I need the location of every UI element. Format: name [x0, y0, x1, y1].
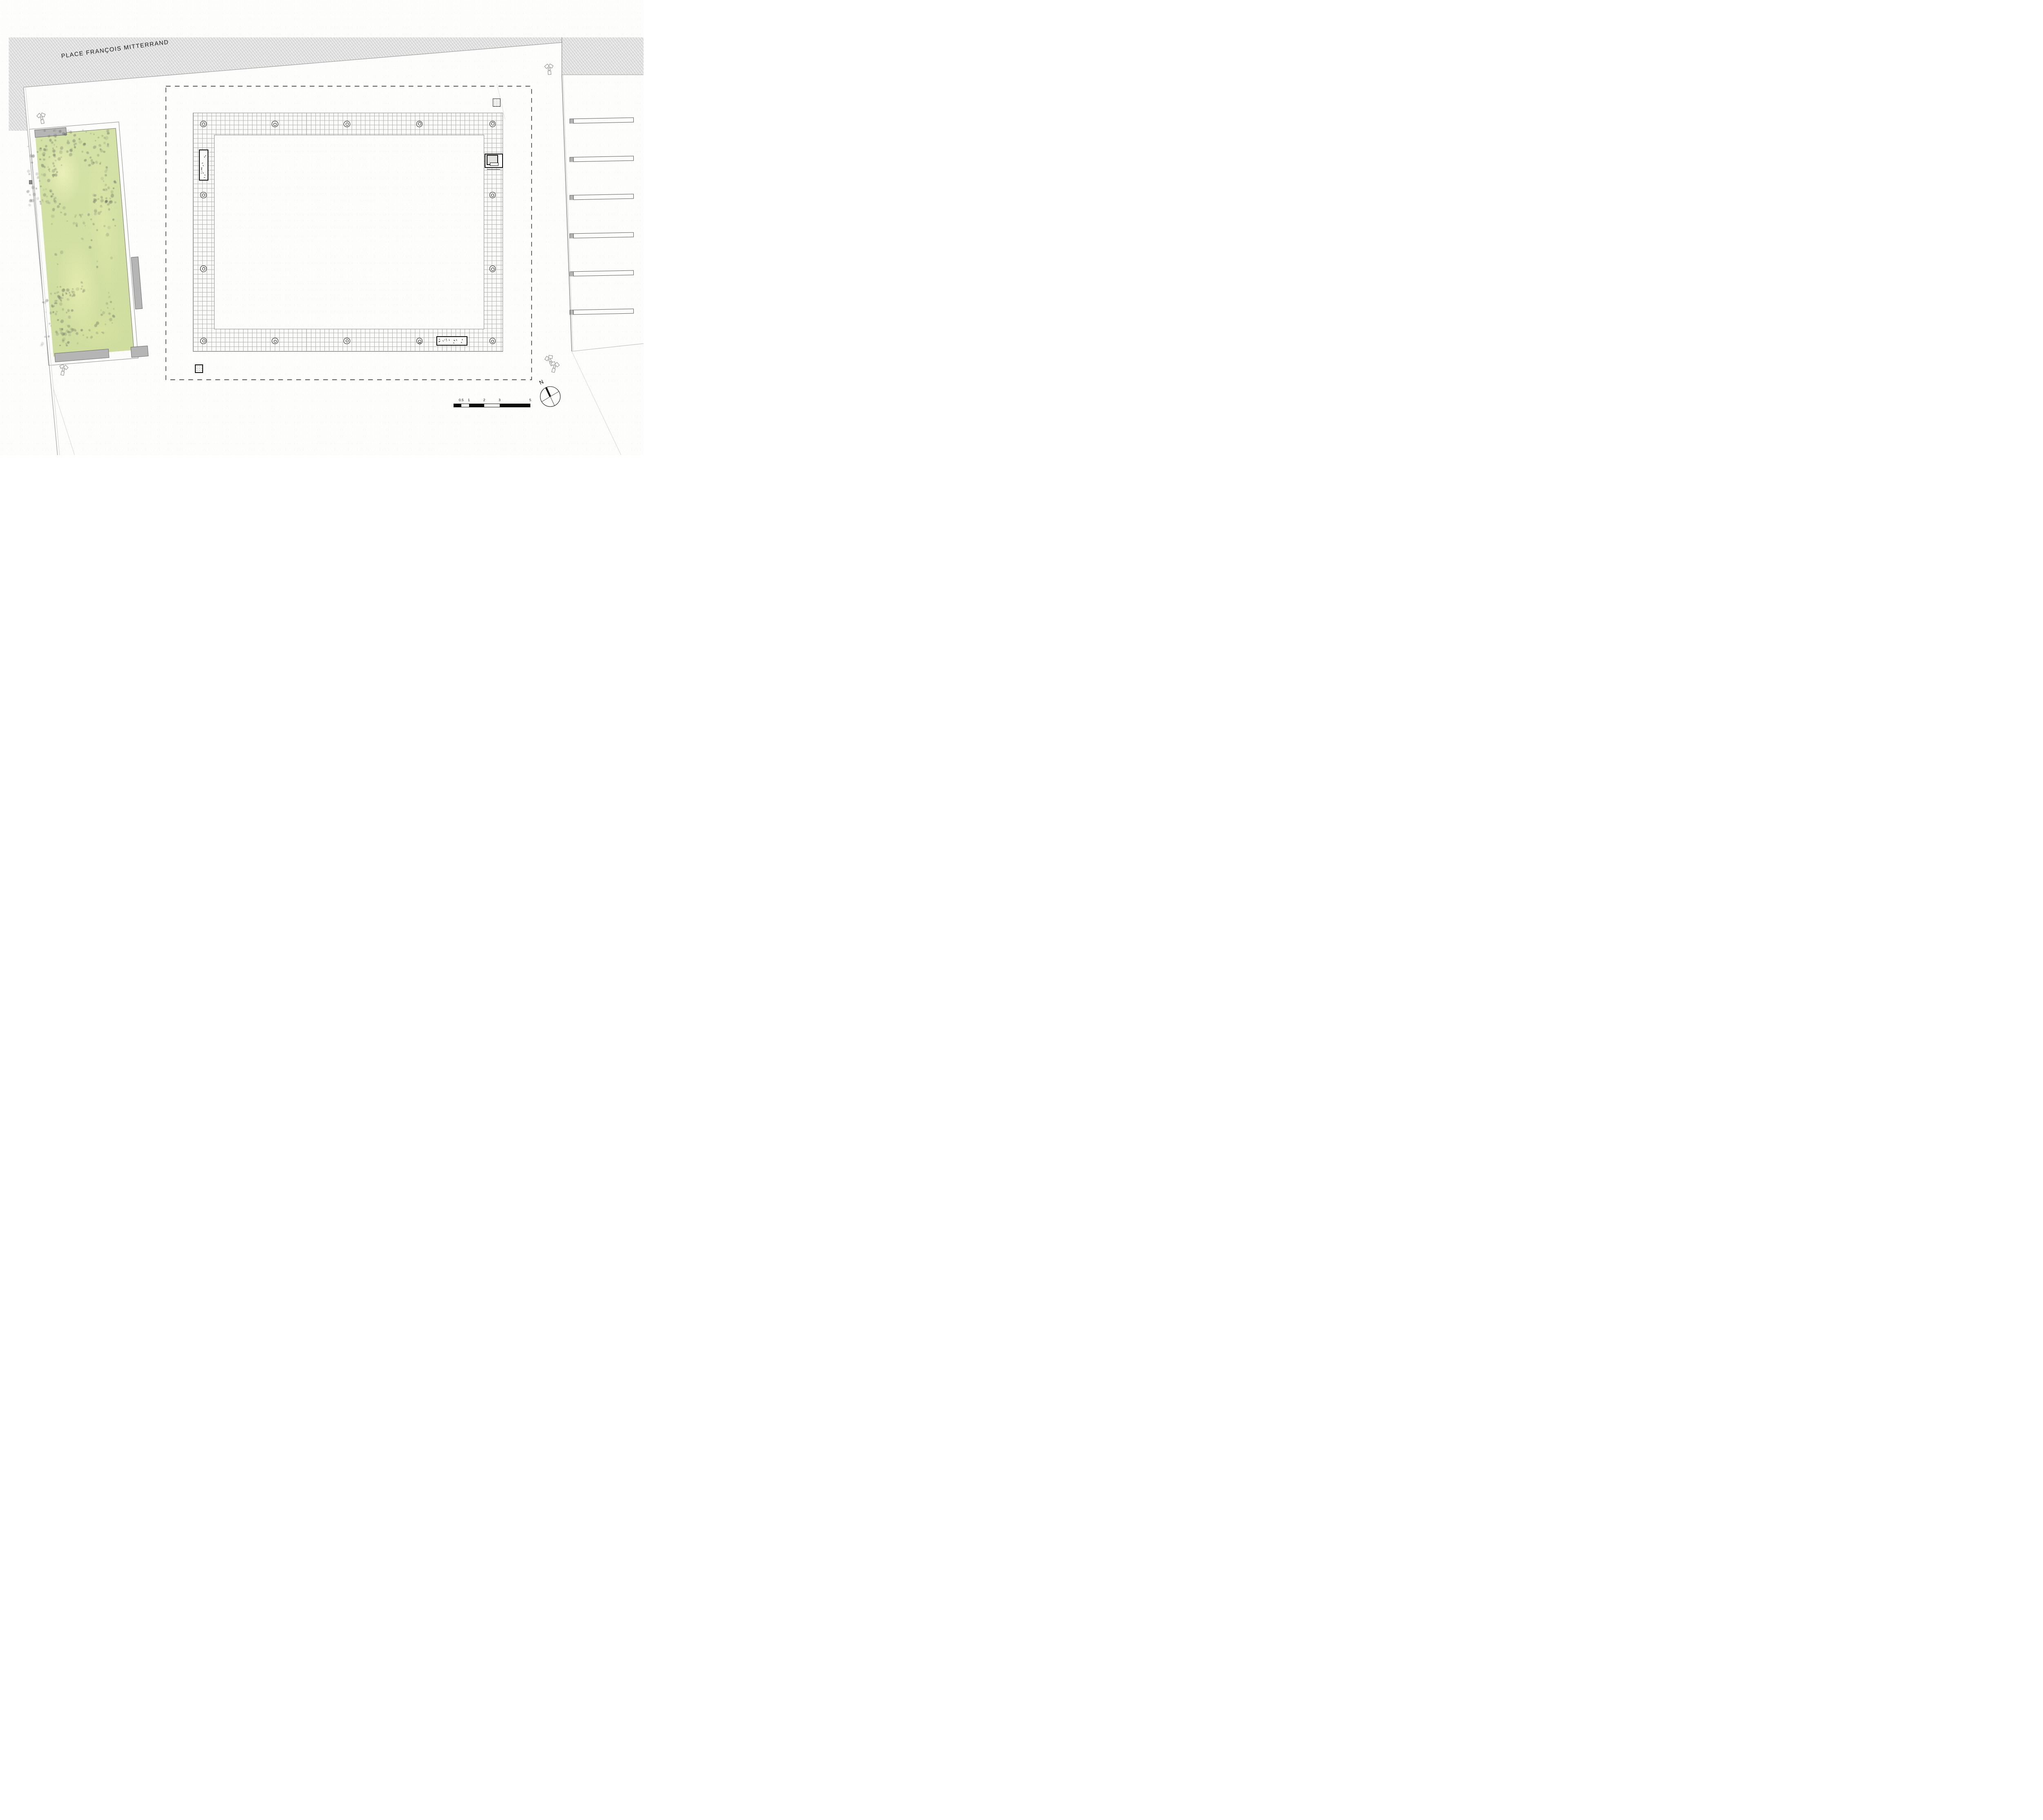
- floodlight-head: [548, 70, 551, 75]
- gravel-mark: [440, 341, 440, 342]
- gravel-bench-bottom: ▵▵▵: [436, 336, 467, 346]
- gravel-mark: [204, 175, 206, 176]
- scale-tick-label: 0.5: [459, 398, 464, 402]
- scale-tick-label: 3: [498, 398, 501, 402]
- column-symbol: [416, 338, 423, 344]
- floodlight-head: [552, 368, 556, 373]
- column-core: [491, 122, 494, 125]
- floodlight-icon: [548, 360, 561, 374]
- column-core: [274, 340, 277, 343]
- north-arrow: [540, 386, 560, 406]
- canopy-blob: [29, 198, 33, 202]
- column-core: [418, 122, 421, 125]
- column-core: [346, 123, 349, 126]
- gravel-triangle: ▵: [453, 339, 455, 342]
- scale-tick-label: 5: [529, 398, 531, 402]
- gravel-mark: [456, 339, 457, 341]
- canopy-blob: [40, 342, 45, 346]
- canopy-blob: [40, 344, 43, 347]
- column-symbol: [200, 338, 207, 344]
- column-core: [491, 194, 494, 197]
- gravel-mark: [205, 155, 206, 156]
- column-symbol: [490, 192, 496, 199]
- north-letter: N: [538, 379, 544, 386]
- concrete-pad-southwest: [195, 364, 203, 373]
- gravel-mark: [202, 163, 203, 163]
- fountain-step: [490, 163, 498, 166]
- concrete-bar-right: [131, 257, 142, 309]
- column-symbol: [272, 121, 278, 127]
- scale-bar: 0.5 1 2 3 5: [454, 404, 530, 407]
- column-core: [346, 339, 349, 343]
- pergola-grid-band: [193, 113, 503, 352]
- canopy-blob: [27, 145, 29, 147]
- column-symbol: [344, 121, 350, 127]
- gravel-mark: [443, 340, 443, 342]
- floodlight-head: [40, 119, 45, 124]
- column-symbol: [344, 338, 350, 344]
- tree-trunk-marker: [29, 180, 32, 184]
- wheel-stop: [570, 272, 573, 277]
- wheel-stop: [570, 119, 573, 124]
- gravel-mark: [204, 156, 205, 158]
- column-symbol: [200, 192, 207, 199]
- floodlight-icon: [35, 111, 48, 125]
- column-core: [491, 268, 494, 271]
- gravel-mark: [453, 342, 454, 343]
- gravel-mark: [461, 342, 462, 343]
- parking-stall: [570, 308, 634, 315]
- floodlight-base: [548, 68, 550, 70]
- garden-path-frame: [29, 122, 139, 366]
- scale-segment: [484, 404, 500, 407]
- canopy-blob: [28, 203, 31, 207]
- column-core: [202, 339, 206, 343]
- floodlight-base: [40, 117, 43, 120]
- scale-segment: [461, 404, 469, 407]
- floodlight-icon: [543, 63, 555, 75]
- column-symbol: [490, 121, 496, 127]
- canopy-blob: [30, 199, 35, 203]
- floodlight-head: [548, 355, 553, 359]
- concrete-pad-northeast: [493, 98, 501, 107]
- gravel-mark: [462, 339, 463, 340]
- column-symbol: [200, 266, 207, 272]
- scale-tick-label: 2: [483, 398, 485, 402]
- downlight-dot: [419, 342, 421, 344]
- gravel-bench-left: ▵▵▵: [199, 150, 209, 181]
- canopy-blob: [26, 190, 30, 194]
- column-core: [202, 194, 205, 197]
- column-symbol: [272, 338, 278, 344]
- floodlight-icon: [56, 363, 70, 376]
- concrete-bar-corner: [130, 346, 148, 357]
- wheel-stop: [570, 157, 573, 162]
- gravel-mark: [203, 172, 204, 173]
- floodlight-head: [40, 113, 45, 117]
- gravel-mark: [439, 339, 440, 339]
- garden-lawn: [35, 128, 134, 357]
- courtyard: [214, 135, 484, 329]
- gravel-triangle: ▵: [201, 167, 203, 169]
- scale-tick-label: 1: [468, 398, 470, 402]
- floodlight-base: [62, 368, 65, 371]
- fountain-basin: [487, 155, 498, 165]
- gravel-mark: [203, 165, 203, 166]
- parking-stall: [570, 232, 634, 238]
- gravel-mark: [204, 177, 205, 178]
- column-core: [273, 123, 277, 126]
- column-core: [491, 340, 494, 343]
- parking-stall: [570, 118, 634, 124]
- column-core: [202, 267, 206, 270]
- parking-stall: [570, 194, 634, 200]
- canopy-blob: [29, 199, 33, 203]
- gravel-triangle: ▵: [201, 172, 202, 175]
- gravel-mark: [449, 339, 449, 341]
- wheel-stop: [570, 234, 573, 239]
- wheel-stop: [570, 310, 573, 315]
- floodlight-head: [60, 371, 65, 375]
- parking-stall: [570, 270, 634, 277]
- wheel-stop: [570, 195, 573, 200]
- column-symbol: [200, 121, 207, 127]
- floodlight-base: [553, 366, 556, 368]
- gravel-triangle: ▵: [446, 340, 448, 342]
- canopy-blob: [29, 194, 31, 196]
- site-plan: PLACE FRANÇOIS MITTERRAND ▵▵▵ ▵▵▵: [0, 0, 644, 455]
- column-core: [202, 123, 205, 126]
- canopy-blob: [29, 173, 31, 175]
- fountain-kiosk: [485, 154, 503, 167]
- canopy-blob: [26, 169, 31, 173]
- bench-line: [487, 169, 501, 170]
- column-symbol: [490, 266, 496, 272]
- parking-stall: [570, 156, 634, 162]
